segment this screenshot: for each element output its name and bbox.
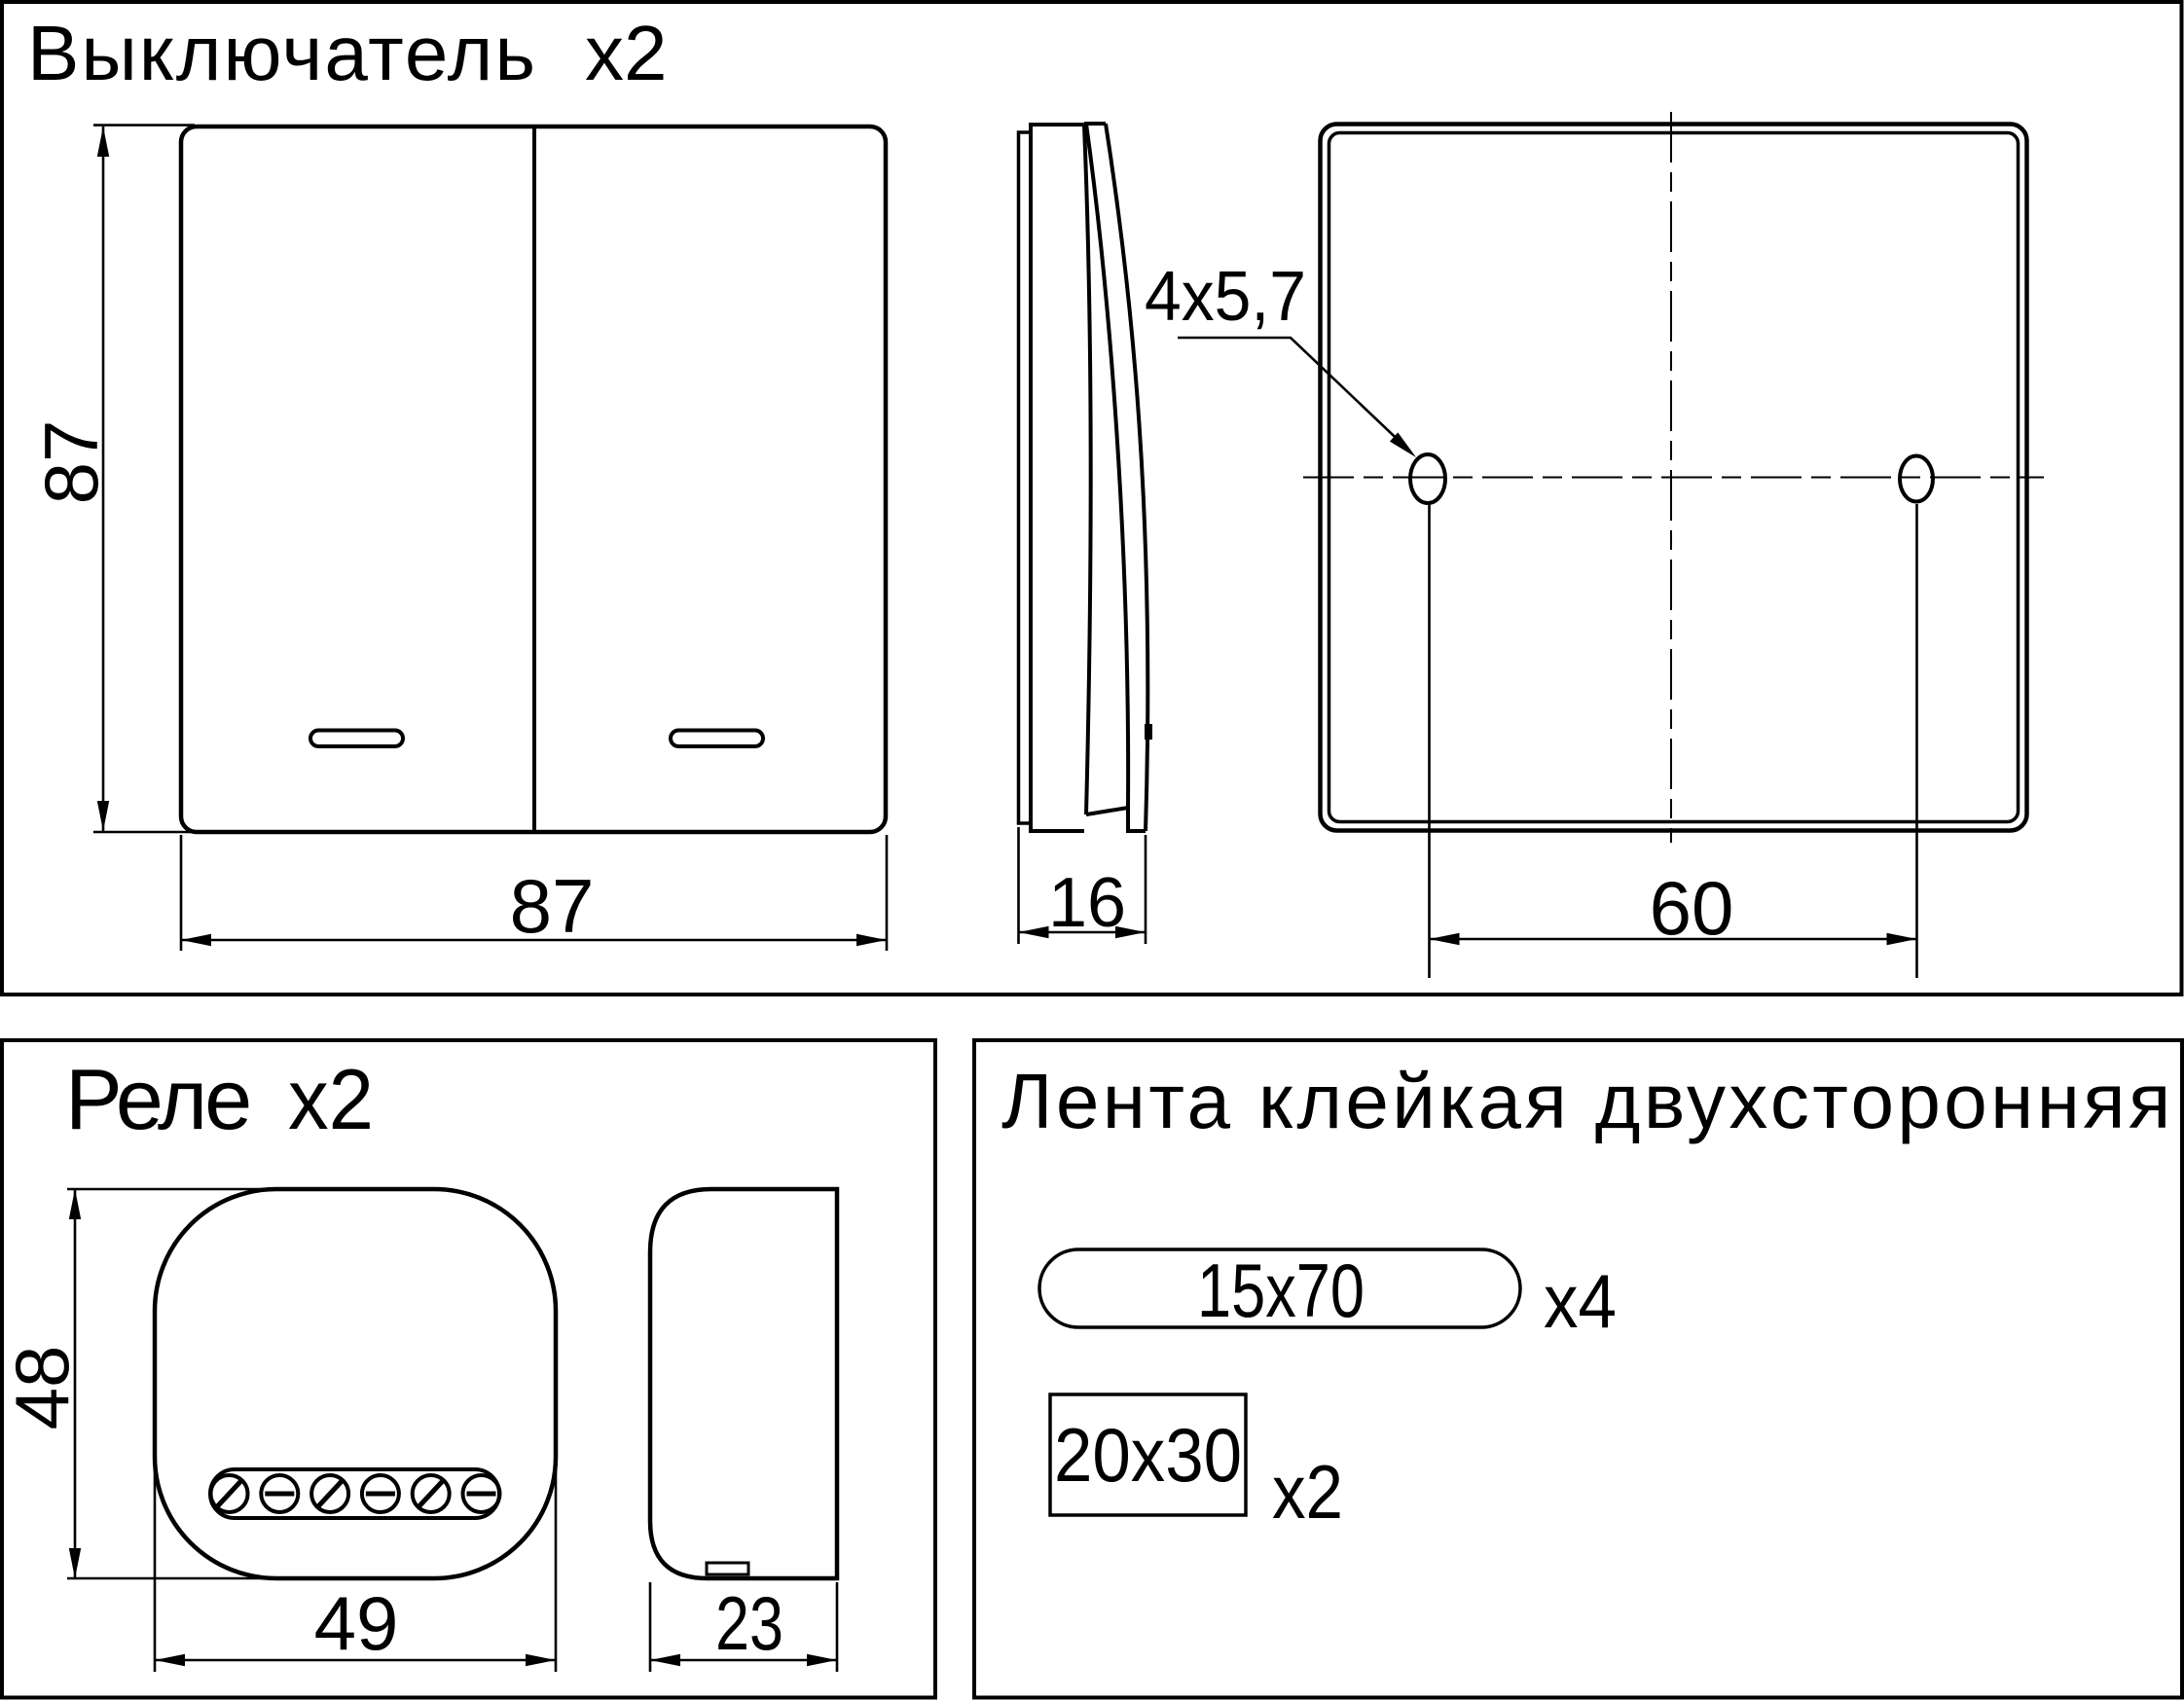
svg-text:4x5,7: 4x5,7 bbox=[1145, 258, 1306, 336]
svg-text:20x30: 20x30 bbox=[1054, 1412, 1242, 1498]
svg-text:87: 87 bbox=[28, 420, 114, 505]
svg-text:x2: x2 bbox=[1272, 1449, 1343, 1535]
svg-text:48: 48 bbox=[0, 1346, 85, 1430]
svg-text:87: 87 bbox=[510, 863, 595, 949]
svg-text:23: 23 bbox=[715, 1580, 783, 1666]
svg-text:60: 60 bbox=[1650, 865, 1734, 951]
svg-text:Лента клейкая двухсторонняя: Лента клейкая двухсторонняя bbox=[1001, 1058, 2174, 1144]
svg-text:x2: x2 bbox=[288, 1051, 374, 1147]
svg-text:x2: x2 bbox=[585, 10, 668, 96]
svg-text:Реле: Реле bbox=[65, 1051, 249, 1147]
svg-text:15x70: 15x70 bbox=[1197, 1248, 1365, 1333]
svg-text:16: 16 bbox=[1048, 864, 1126, 942]
svg-text:Выключатель: Выключатель bbox=[27, 10, 537, 96]
svg-text:x4: x4 bbox=[1544, 1258, 1617, 1344]
svg-text:49: 49 bbox=[314, 1580, 399, 1666]
